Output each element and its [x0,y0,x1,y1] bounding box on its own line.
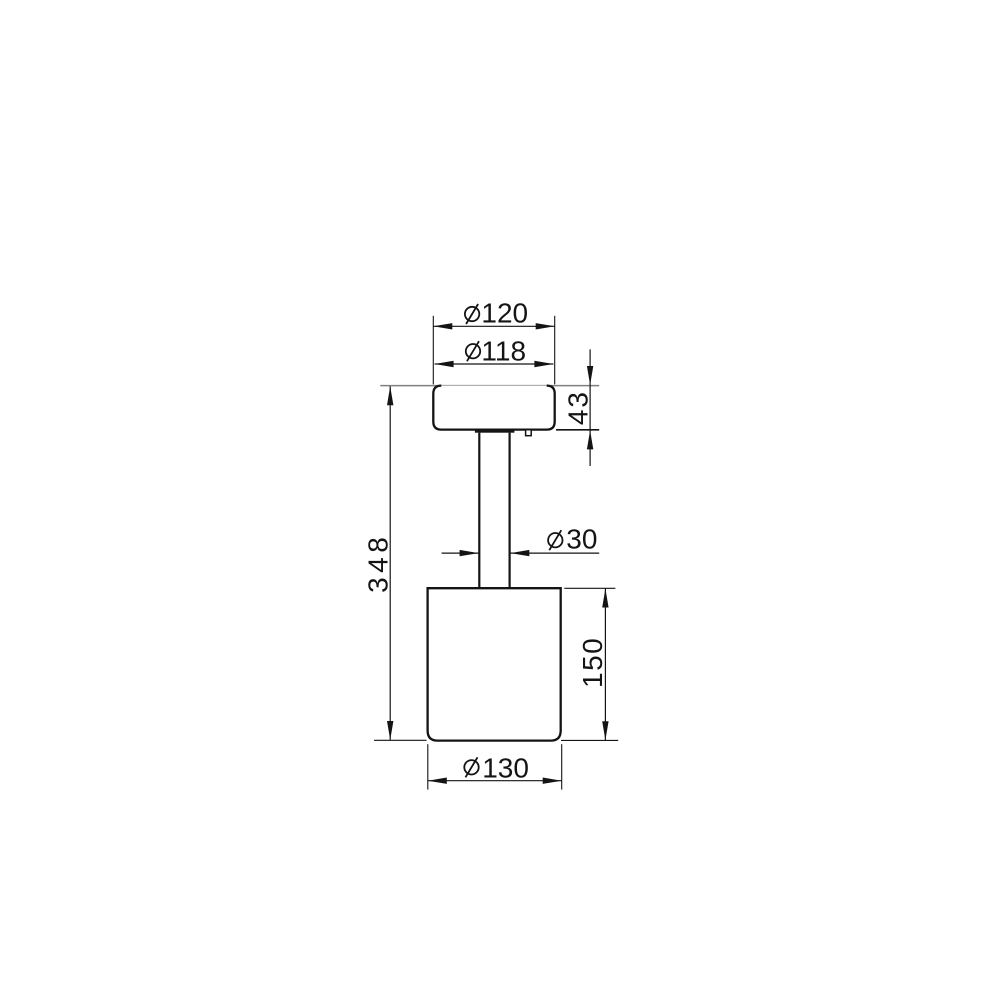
svg-text:30: 30 [566,524,597,555]
svg-text:43: 43 [562,390,593,425]
svg-text:120: 120 [481,297,528,328]
svg-text:348: 348 [362,533,393,593]
svg-text:150: 150 [577,637,608,688]
svg-text:130: 130 [482,752,529,783]
svg-text:118: 118 [481,336,526,367]
